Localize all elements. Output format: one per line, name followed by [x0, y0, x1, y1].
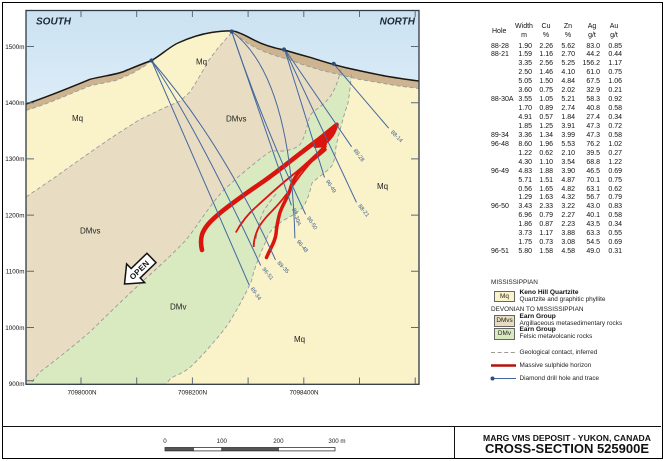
svg-text:0: 0 — [163, 438, 167, 445]
svg-text:1300m: 1300m — [5, 156, 24, 163]
svg-text:DMv: DMv — [170, 303, 186, 312]
svg-text:900m: 900m — [9, 381, 25, 388]
svg-text:DMvs: DMvs — [80, 227, 100, 236]
svg-text:7098200N: 7098200N — [178, 390, 208, 397]
svg-text:Mq: Mq — [377, 182, 388, 191]
svg-text:7098400N: 7098400N — [289, 390, 319, 397]
svg-text:Mq: Mq — [294, 335, 305, 344]
svg-text:SOUTH: SOUTH — [36, 17, 72, 28]
svg-text:100: 100 — [217, 438, 228, 445]
svg-text:7098000N: 7098000N — [67, 390, 97, 397]
svg-text:Mq: Mq — [196, 58, 207, 67]
svg-text:200: 200 — [273, 438, 284, 445]
svg-text:1200m: 1200m — [5, 212, 24, 219]
svg-text:NORTH: NORTH — [380, 17, 416, 28]
svg-text:1400m: 1400m — [5, 100, 24, 107]
svg-text:1000m: 1000m — [5, 325, 24, 332]
svg-text:1100m: 1100m — [6, 269, 25, 276]
svg-text:DMvs: DMvs — [226, 115, 246, 124]
svg-text:1500m: 1500m — [5, 44, 24, 51]
svg-text:Mq: Mq — [72, 114, 83, 123]
svg-text:300 m: 300 m — [328, 438, 345, 445]
